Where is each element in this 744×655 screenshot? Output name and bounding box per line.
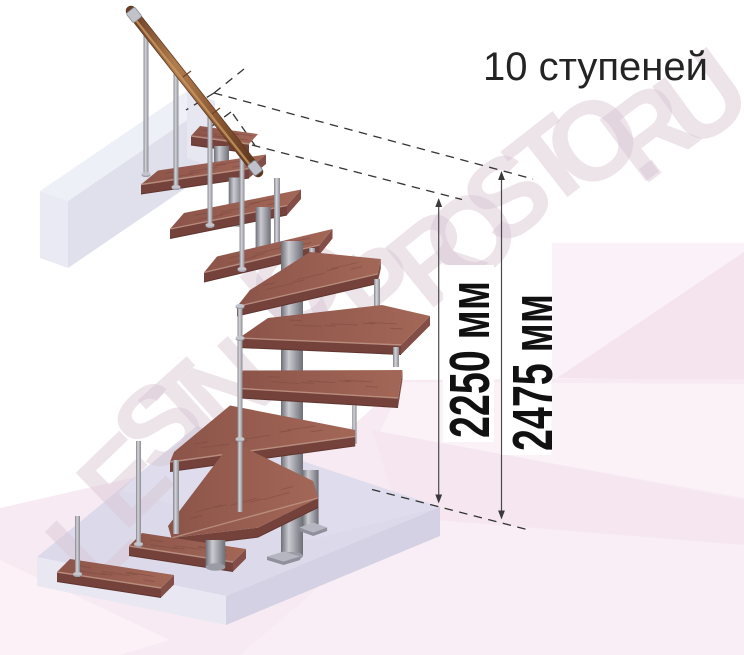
svg-text:10 ступеней: 10 ступеней bbox=[483, 45, 708, 89]
svg-text:2475 мм: 2475 мм bbox=[501, 294, 565, 451]
svg-text:2250 мм: 2250 мм bbox=[438, 281, 502, 438]
